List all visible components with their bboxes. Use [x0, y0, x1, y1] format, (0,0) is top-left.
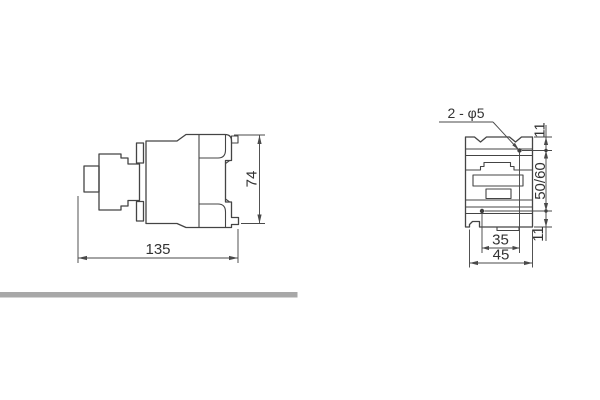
- side-view-width-dimension: 135: [78, 196, 238, 263]
- arrowhead: [257, 135, 261, 144]
- offset-top-label: 11: [532, 122, 549, 138]
- mounting-hole-bottom: [480, 209, 484, 213]
- arrowhead: [257, 215, 261, 224]
- technical-drawing-canvas: 135 74 2 - φ5: [0, 0, 600, 400]
- bottom-foot-outline: [497, 227, 519, 231]
- coil-block-outline: [99, 154, 140, 210]
- inner-contour-top: [199, 135, 226, 159]
- dimension-node: [544, 149, 547, 152]
- side-view-height-dimension: 74: [234, 135, 265, 224]
- mount-height-label: 50/60: [532, 162, 549, 200]
- knob-outline: [84, 166, 99, 192]
- bottom-latch-outline: [137, 202, 144, 222]
- front-view: 2 - φ5 35 45: [439, 105, 552, 268]
- label-plate-outline: [473, 175, 523, 186]
- technical-drawing: 135 74 2 - φ5: [0, 0, 600, 400]
- offset-bottom-label: 11: [530, 226, 547, 242]
- arrowhead: [482, 246, 489, 250]
- arrowhead: [470, 261, 479, 265]
- inner-contour-bottom: [199, 204, 226, 228]
- arrowhead: [229, 256, 238, 260]
- divider-bar: [0, 292, 298, 298]
- side-view-width-label: 135: [145, 241, 170, 258]
- small-plate-outline: [486, 189, 511, 199]
- arrowhead: [544, 219, 548, 227]
- top-latch-outline: [137, 143, 144, 163]
- arrowhead: [78, 256, 87, 260]
- terminal-tab-outline: [466, 163, 533, 171]
- hole-callout-label: 2 - φ5: [447, 105, 484, 121]
- front-view-width-label: 45: [493, 247, 510, 264]
- top-clip-outline: [232, 136, 239, 143]
- main-body-outline: [146, 135, 239, 228]
- side-view: 135 74: [78, 135, 265, 264]
- arrowhead: [513, 246, 520, 250]
- arrowhead: [524, 261, 533, 265]
- hole-callout: 2 - φ5: [439, 105, 519, 150]
- dimension-node: [544, 209, 547, 212]
- side-view-height-label: 74: [244, 171, 261, 188]
